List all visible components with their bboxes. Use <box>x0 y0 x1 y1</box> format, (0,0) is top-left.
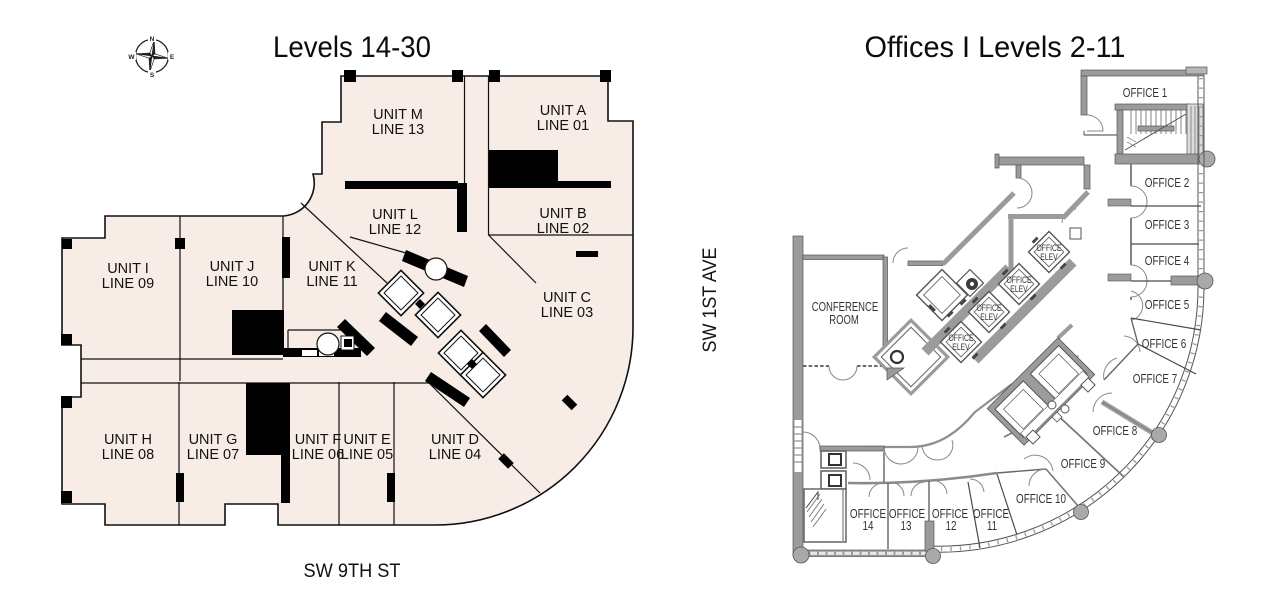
svg-text:ELEV: ELEV <box>952 342 970 352</box>
svg-text:14: 14 <box>863 520 874 534</box>
svg-text:ELEV: ELEV <box>980 312 998 322</box>
svg-text:OFFICE 7: OFFICE 7 <box>1133 373 1177 387</box>
svg-text:SW 9TH ST: SW 9TH ST <box>304 561 401 582</box>
svg-text:UNIT C: UNIT C <box>543 290 591 306</box>
svg-text:Levels 14-30: Levels 14-30 <box>273 31 431 64</box>
svg-text:OFFICE 2: OFFICE 2 <box>1145 177 1189 191</box>
svg-text:OFFICE 1: OFFICE 1 <box>1123 87 1167 101</box>
svg-text:UNIT I: UNIT I <box>107 261 149 277</box>
svg-text:LINE 04: LINE 04 <box>429 447 481 463</box>
svg-text:S: S <box>150 72 155 79</box>
svg-text:Offices I Levels 2-11: Offices I Levels 2-11 <box>865 31 1126 64</box>
svg-text:LINE 09: LINE 09 <box>102 276 154 292</box>
svg-text:OFFICE 3: OFFICE 3 <box>1145 219 1189 233</box>
svg-text:LINE 05: LINE 05 <box>341 447 393 463</box>
svg-text:LINE 03: LINE 03 <box>541 305 593 321</box>
svg-text:SW 1ST AVE: SW 1ST AVE <box>700 248 721 353</box>
svg-text:OFFICE 5: OFFICE 5 <box>1145 299 1189 313</box>
svg-text:LINE 06: LINE 06 <box>292 447 344 463</box>
svg-text:OFFICE 8: OFFICE 8 <box>1093 425 1137 439</box>
svg-text:12: 12 <box>946 520 957 534</box>
svg-text:UNIT H: UNIT H <box>104 432 152 448</box>
svg-text:LINE 02: LINE 02 <box>537 221 589 237</box>
svg-text:UNIT B: UNIT B <box>539 206 586 222</box>
svg-text:LINE 08: LINE 08 <box>102 447 154 463</box>
svg-text:UNIT D: UNIT D <box>431 432 479 448</box>
svg-text:UNIT M: UNIT M <box>373 107 423 123</box>
svg-text:OFFICE 4: OFFICE 4 <box>1145 255 1190 269</box>
svg-text:UNIT A: UNIT A <box>540 103 587 119</box>
svg-text:LINE 11: LINE 11 <box>306 274 357 290</box>
svg-text:13: 13 <box>901 520 912 534</box>
svg-text:OFFICE 9: OFFICE 9 <box>1061 458 1105 472</box>
svg-text:UNIT F: UNIT F <box>295 432 342 448</box>
svg-text:UNIT E: UNIT E <box>343 432 391 448</box>
svg-text:11: 11 <box>987 520 997 534</box>
svg-text:ELEV: ELEV <box>1040 252 1058 262</box>
svg-text:OFFICE 6: OFFICE 6 <box>1142 338 1186 352</box>
svg-text:ROOM: ROOM <box>829 314 859 328</box>
svg-text:CONFERENCE: CONFERENCE <box>812 301 878 315</box>
svg-text:W: W <box>128 54 135 61</box>
svg-text:LINE 12: LINE 12 <box>369 222 421 238</box>
svg-text:E: E <box>170 54 175 61</box>
svg-text:N: N <box>150 36 155 43</box>
svg-text:UNIT J: UNIT J <box>210 259 255 275</box>
svg-text:LINE 07: LINE 07 <box>187 447 239 463</box>
svg-text:LINE 13: LINE 13 <box>372 122 424 138</box>
svg-text:ELEV: ELEV <box>1010 284 1028 294</box>
svg-text:LINE 10: LINE 10 <box>206 274 258 290</box>
svg-text:UNIT L: UNIT L <box>372 207 418 223</box>
svg-text:UNIT G: UNIT G <box>189 432 238 448</box>
svg-text:OFFICE 10: OFFICE 10 <box>1016 493 1066 507</box>
svg-text:UNIT K: UNIT K <box>308 259 356 275</box>
svg-text:LINE 01: LINE 01 <box>537 118 589 134</box>
